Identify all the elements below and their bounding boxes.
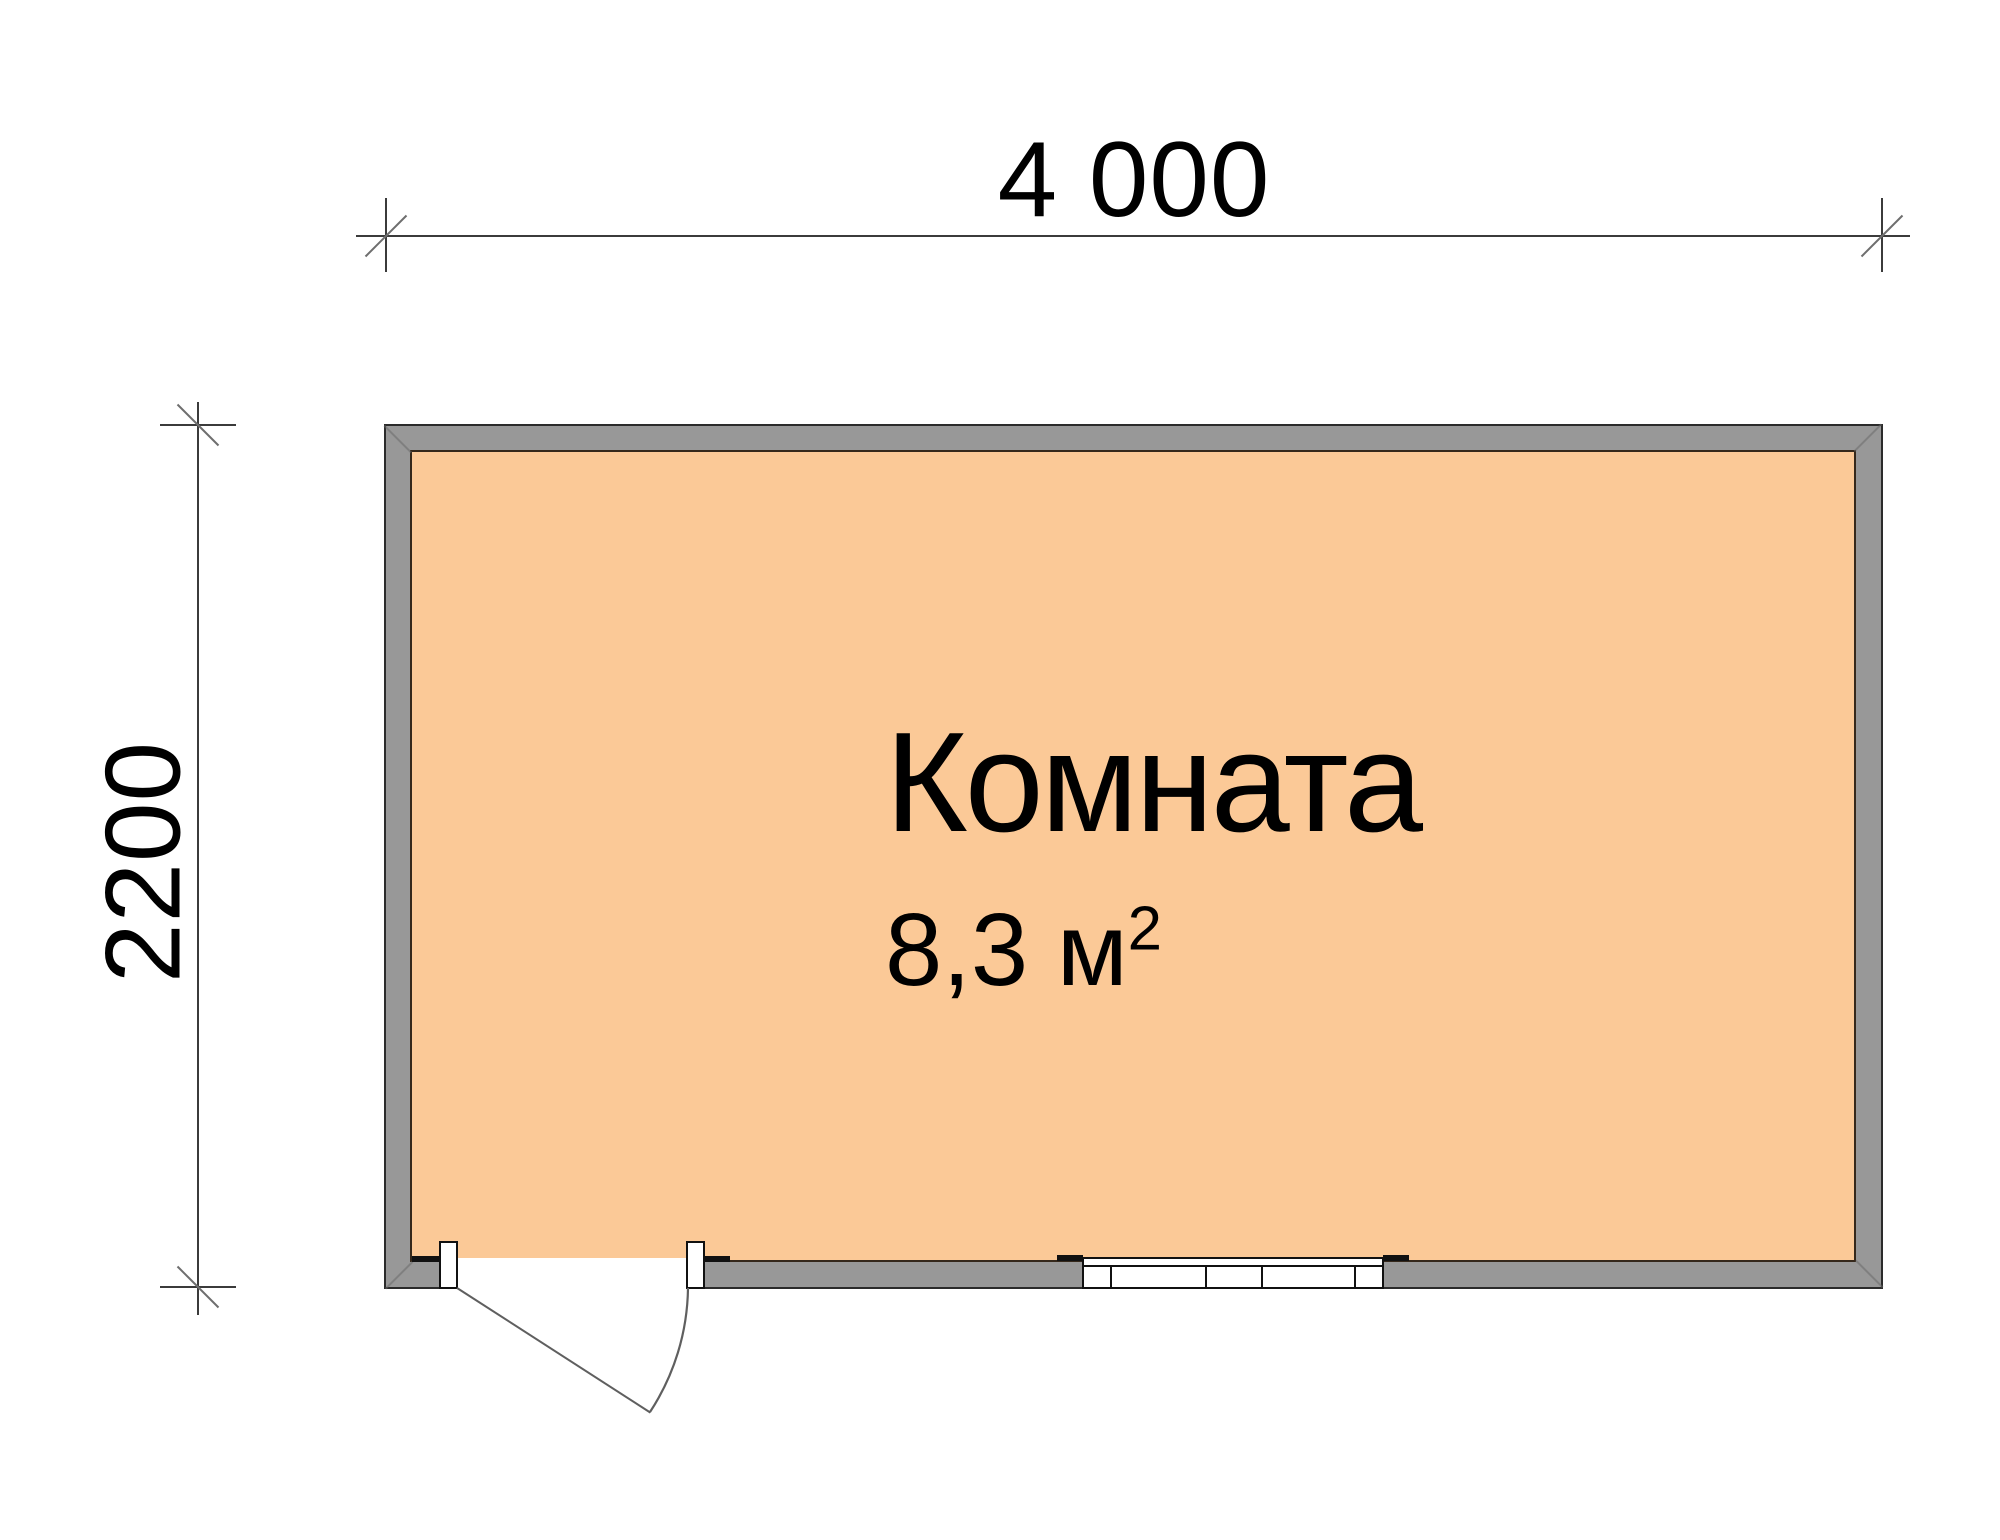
width-dimension-label: 4 000 xyxy=(998,126,1271,233)
room-name-label: Комната xyxy=(885,712,1420,854)
window-frame xyxy=(1082,1257,1384,1289)
room-area-unit: м xyxy=(1057,892,1128,1007)
room-area-value: 8,3 xyxy=(885,892,1028,1007)
window-mullion-2 xyxy=(1205,1266,1207,1287)
window-mullion-3 xyxy=(1261,1266,1263,1287)
window-mullion-4 xyxy=(1354,1266,1356,1287)
window-mullion-1 xyxy=(1110,1266,1112,1287)
window-glazing-line xyxy=(1082,1265,1384,1267)
room-area-exponent: 2 xyxy=(1128,895,1162,964)
door-swing-arc xyxy=(420,1270,710,1430)
floor-plan-canvas: 4 000 2200 Комната 8,3 м2 xyxy=(0,0,2000,1540)
height-dimension-label: 2200 xyxy=(90,741,197,983)
wall-end-cap-window-right xyxy=(1383,1255,1409,1261)
room-area-label: 8,3 м2 xyxy=(885,898,1162,1001)
wall-end-cap-door-right xyxy=(704,1256,730,1262)
wall-end-cap-door-left xyxy=(412,1256,440,1262)
door-swing-arc-path xyxy=(650,1288,688,1412)
wall-end-cap-window-left xyxy=(1057,1255,1083,1261)
